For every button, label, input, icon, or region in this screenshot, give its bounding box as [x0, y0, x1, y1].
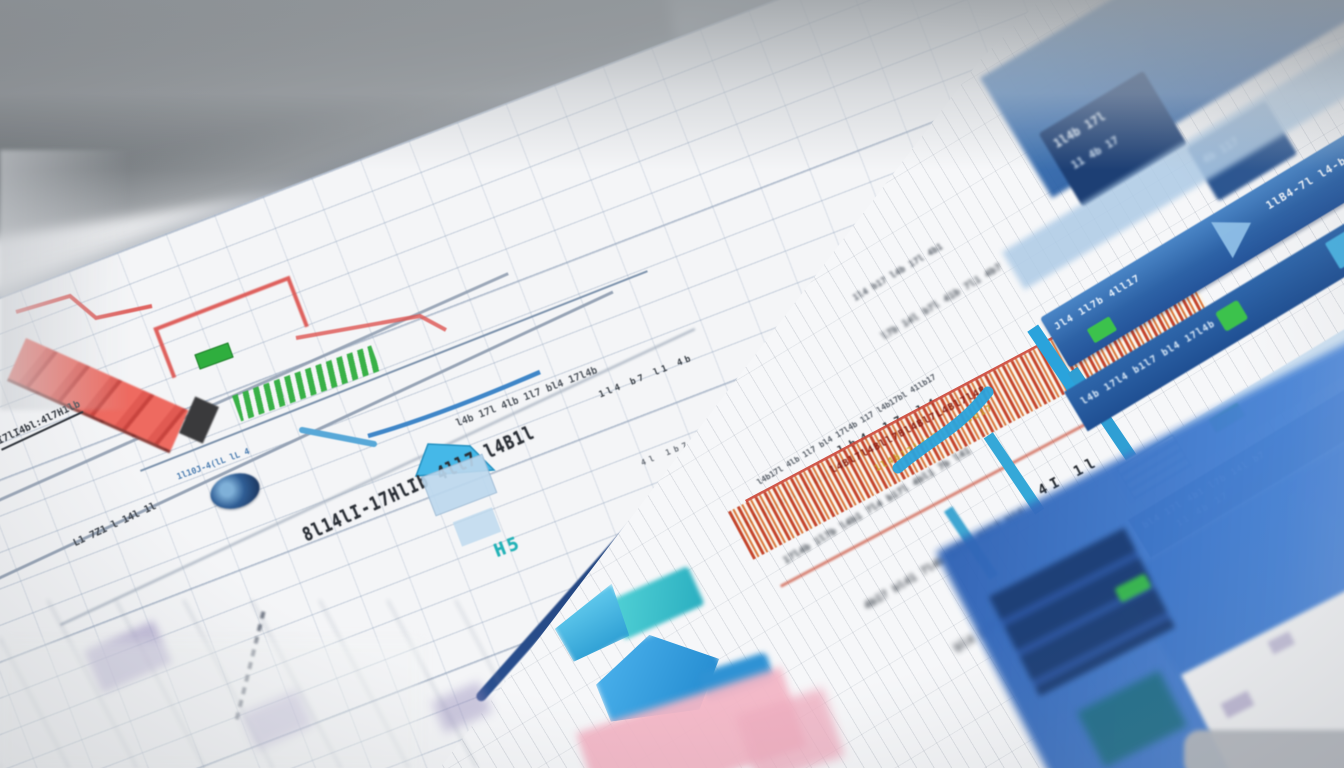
front-left-lines — [0, 600, 500, 768]
front-layer — [0, 0, 1344, 768]
gray-tab-shape — [1184, 730, 1344, 768]
purple-mark-small — [1220, 691, 1254, 719]
photo-canvas: 8l14lI-17HlIb 4ll7 l4B1l I7lI4bl:4l7H1lb… — [0, 0, 1344, 768]
purple-mark-small — [1267, 631, 1295, 654]
